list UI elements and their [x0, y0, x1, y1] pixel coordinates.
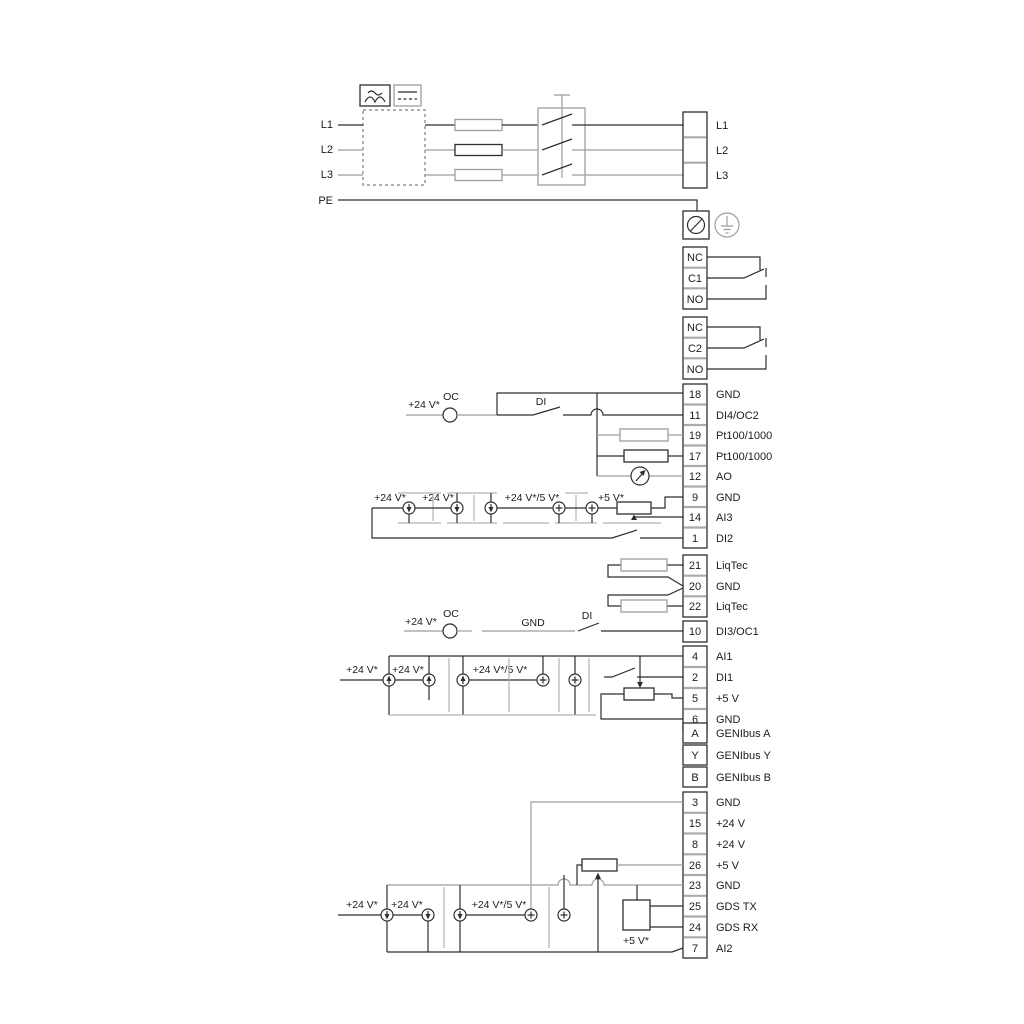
terminal-number: 19	[689, 430, 701, 442]
terminal-label: GND	[716, 581, 741, 593]
terminal-label: DI3/OC1	[716, 626, 759, 638]
ai1-sensor-options: +24 V* +24 V* +24 V*/5 V*	[340, 656, 683, 719]
oc-label: OC	[443, 391, 459, 403]
terminal-number: Y	[691, 750, 699, 762]
current-source-icon	[403, 502, 415, 514]
plus-source-icon	[569, 674, 581, 686]
potentiometer	[617, 497, 683, 520]
relay-terminal: NC	[687, 322, 703, 334]
plus24v-5v-label: +24 V*/5 V*	[472, 899, 527, 911]
relay-terminal: NO	[687, 364, 704, 376]
plus24v-label: +24 V*	[392, 664, 424, 676]
oc-label: OC	[443, 608, 459, 620]
power-out-label: L3	[716, 170, 728, 182]
terminal-label: AO	[716, 471, 732, 483]
ground-terminal	[683, 211, 709, 239]
plus24v-label: +24 V*	[391, 899, 423, 911]
terminal-label: GND	[716, 714, 741, 726]
relay2-block: NC C2 NO	[683, 317, 766, 379]
terminal-number: 4	[692, 651, 698, 663]
power-section: L1 L2 L3 PE	[318, 85, 728, 207]
terminal-label: +24 V	[716, 839, 746, 851]
fuse-l3	[455, 170, 502, 181]
wiring-diagram-page: L1 L2 L3 PE	[0, 0, 1024, 1024]
terminal-number: 5	[692, 693, 698, 705]
terminal-label: GND	[716, 492, 741, 504]
terminal-label: GENIbus Y	[716, 750, 771, 762]
current-source-icon	[383, 674, 395, 686]
plus24v-label: +24 V*	[346, 664, 378, 676]
relay1-block: NC C1 NO	[683, 247, 766, 309]
terminal-number: 24	[689, 922, 701, 934]
oc-symbol	[443, 408, 457, 422]
relay1-contact	[707, 257, 766, 299]
power-in-label: L1	[321, 119, 333, 131]
terminal-number: 3	[692, 797, 698, 809]
terminal-label: Pt100/1000	[716, 430, 772, 442]
power-terminal-block: L1 L2 L3	[683, 112, 728, 188]
terminal-label: LiqTec	[716, 560, 748, 572]
terminal-label: Pt100/1000	[716, 451, 772, 463]
relay-terminal: NO	[687, 294, 704, 306]
gnd-label: GND	[521, 617, 545, 629]
relay-terminal: NC	[687, 252, 703, 264]
wiring-diagram: L1 L2 L3 PE	[0, 0, 1024, 1024]
relay-terminal: C1	[688, 273, 702, 285]
terminal-number: 12	[689, 471, 701, 483]
terminal-label: LiqTec	[716, 601, 748, 613]
power-in-label: L2	[321, 144, 333, 156]
terminal-number: 9	[692, 492, 698, 504]
terminal-label: GND	[716, 797, 741, 809]
plus24v-label: +24 V*	[422, 492, 454, 504]
io2-terminal-block: 10 DI3/OC1 4 AI1 2 DI1 5 +5 V 6 GND	[683, 621, 759, 730]
terminal-number: B	[691, 772, 698, 784]
di-label: DI	[536, 396, 547, 408]
terminal-number: 1	[692, 533, 698, 545]
terminal-number: 22	[689, 601, 701, 613]
plus-source-icon	[525, 909, 537, 921]
relay-terminal: C2	[688, 343, 702, 355]
terminal-label: DI2	[716, 533, 733, 545]
plus24v-label: +24 V*	[405, 616, 437, 628]
oc-symbol	[443, 624, 457, 638]
terminal-number: 8	[692, 839, 698, 851]
terminal-number: 21	[689, 560, 701, 572]
terminal-number: 25	[689, 901, 701, 913]
terminal-number: A	[691, 728, 699, 740]
relay2-contact	[707, 327, 766, 369]
pe-ground-section	[338, 200, 739, 239]
terminal-label: +5 V	[716, 693, 740, 705]
plus-source-icon	[558, 909, 570, 921]
terminal-label: DI1	[716, 672, 733, 684]
current-source-icon	[454, 909, 466, 921]
terminal-number: 15	[689, 818, 701, 830]
pt100-sensor	[624, 450, 668, 462]
terminal-label: GND	[716, 880, 741, 892]
power-in-label: L3	[321, 169, 333, 181]
liqtec-sensor-wiring	[608, 559, 683, 612]
potentiometer	[601, 656, 683, 719]
terminal-label: GENIbus B	[716, 772, 771, 784]
main-terminal-block: 18 GND 11 DI4/OC2 19 Pt100/1000 17 Pt100…	[683, 384, 772, 548]
dc-icon	[394, 85, 421, 106]
fuse-l1	[455, 120, 502, 131]
ai2-sensor-options: +24 V* +24 V* +24 V*/5 V*	[338, 875, 570, 952]
terminal-label: +5 V	[716, 860, 740, 872]
filter-box	[363, 110, 425, 185]
ao-wiring	[597, 467, 683, 485]
terminal-label: GDS RX	[716, 922, 759, 934]
power-out-label: L2	[716, 145, 728, 157]
terminal-label: GDS TX	[716, 901, 757, 913]
ac-icon	[360, 85, 390, 106]
current-source-icon	[457, 674, 469, 686]
terminal-number: 10	[689, 626, 701, 638]
plus24v-5v-label: +24 V*/5 V*	[505, 492, 560, 504]
current-source-icon	[381, 909, 393, 921]
liqtec-sensor	[621, 559, 667, 571]
terminal-label: AI1	[716, 651, 733, 663]
plus24v-label: +24 V*	[374, 492, 406, 504]
current-source-icon	[422, 909, 434, 921]
terminal-number: 17	[689, 451, 701, 463]
plus24v-label: +24 V*	[346, 899, 378, 911]
di-label: DI	[582, 610, 593, 622]
plus24v-label: +24 V*	[408, 399, 440, 411]
gds-wiring: +5 V*	[387, 802, 683, 952]
fuse-l2	[455, 145, 502, 156]
main-switch	[538, 95, 585, 185]
earth-icon	[715, 213, 739, 237]
terminal-number: 26	[689, 860, 701, 872]
genibus-block: A GENIbus A Y GENIbus Y B GENIbus B	[683, 723, 771, 787]
terminal-label: AI2	[716, 943, 733, 955]
current-source-icon	[485, 502, 497, 514]
liqtec-sensor	[621, 600, 667, 612]
current-source-icon	[451, 502, 463, 514]
current-source-icon	[423, 674, 435, 686]
terminal-number: 11	[689, 410, 700, 422]
pt100-wiring	[597, 429, 683, 462]
power-out-label: L1	[716, 120, 728, 132]
terminal-number: 7	[692, 943, 698, 955]
plus5v-label: +5 V*	[623, 935, 649, 947]
terminal-number: 2	[692, 672, 698, 684]
pt100-sensor	[620, 429, 668, 441]
plus24v-5v-label: +24 V*/5 V*	[473, 664, 528, 676]
terminal-number: 20	[689, 581, 701, 593]
liqtec-block: 21 LiqTec 20 GND 22 LiqTec	[608, 555, 748, 617]
ai3-sensor-options: +24 V* +24 V* +24 V*/5 V* +5 V*	[372, 492, 683, 538]
gds-module	[623, 885, 683, 930]
terminal-number: 18	[689, 389, 701, 401]
terminal-label: DI4/OC2	[716, 410, 759, 422]
terminal-number: 14	[689, 512, 701, 524]
plus-source-icon	[586, 502, 598, 514]
terminal-label: +24 V	[716, 818, 746, 830]
plus-source-icon	[537, 674, 549, 686]
power-in-label: PE	[318, 195, 333, 207]
terminal-label: AI3	[716, 512, 733, 524]
bottom-terminal-block: 3 GND 15 +24 V 8 +24 V 26 +5 V 23 GND 25…	[683, 792, 759, 958]
terminal-label: GND	[716, 389, 741, 401]
terminal-number: 23	[689, 880, 701, 892]
terminal-label: GENIbus A	[716, 728, 771, 740]
